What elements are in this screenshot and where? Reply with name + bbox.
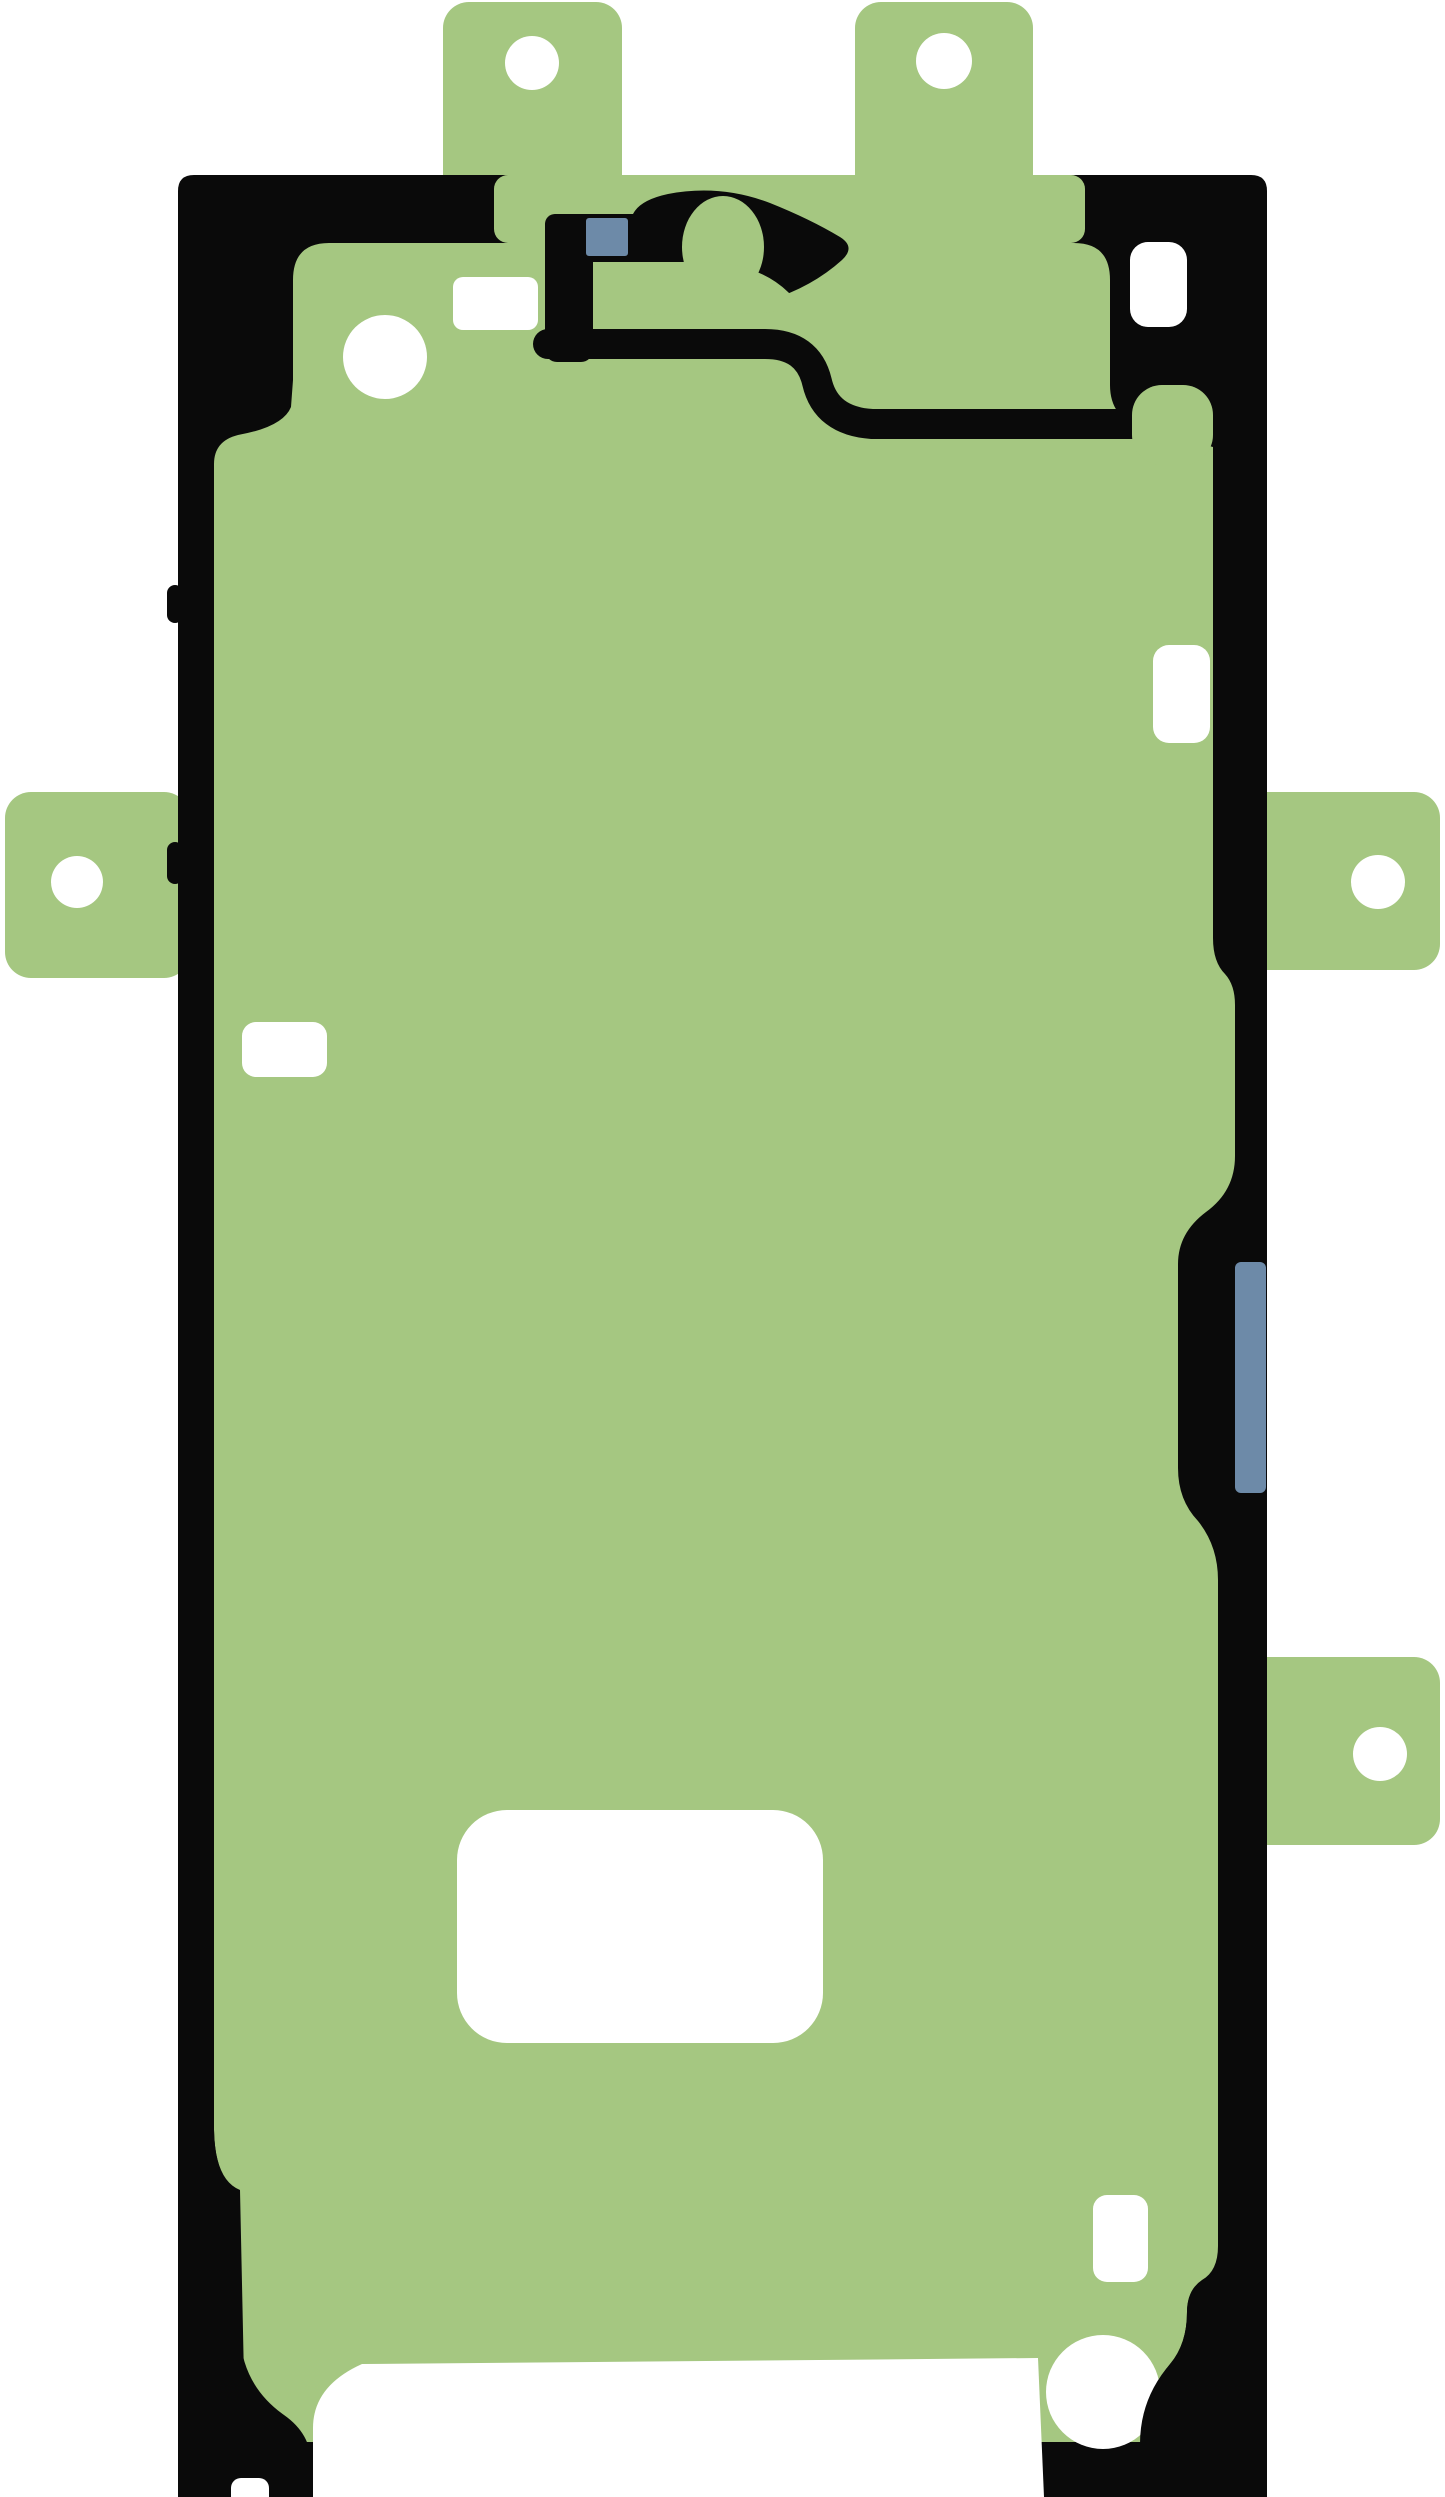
green-liner-main [214, 243, 1235, 2442]
round-cutout-top-left [343, 315, 427, 399]
cutout-bottom-right [1093, 2195, 1148, 2282]
sensor-cutout-top-left [453, 277, 538, 330]
tab-hole-right-middle [1351, 855, 1405, 909]
blue-marker-right-edge [1235, 1262, 1266, 1493]
right-lower-tab [1240, 1657, 1440, 1845]
bottom-opening [313, 2358, 1044, 2497]
tab-hole-top-right [916, 33, 972, 89]
product-image-adhesive-sticker [0, 0, 1445, 2497]
cutout-top-right [1130, 242, 1187, 327]
large-cutout-bottom [457, 1810, 823, 2043]
blue-marker-top [586, 218, 628, 256]
tab-hole-top-left [505, 36, 559, 90]
left-edge-bump-upper [167, 585, 183, 623]
left-edge-bump-lower [167, 842, 183, 884]
cutout-mid-right [1153, 645, 1210, 743]
cutout-mid-left [242, 1022, 327, 1077]
adhesive-sticker-graphic [0, 0, 1445, 2497]
tab-hole-right-lower [1353, 1727, 1407, 1781]
green-finger-right [1132, 385, 1213, 465]
tab-hole-left [51, 856, 103, 908]
right-middle-tab [1240, 792, 1440, 970]
bottom-left-notch-cutout [231, 2478, 269, 2497]
